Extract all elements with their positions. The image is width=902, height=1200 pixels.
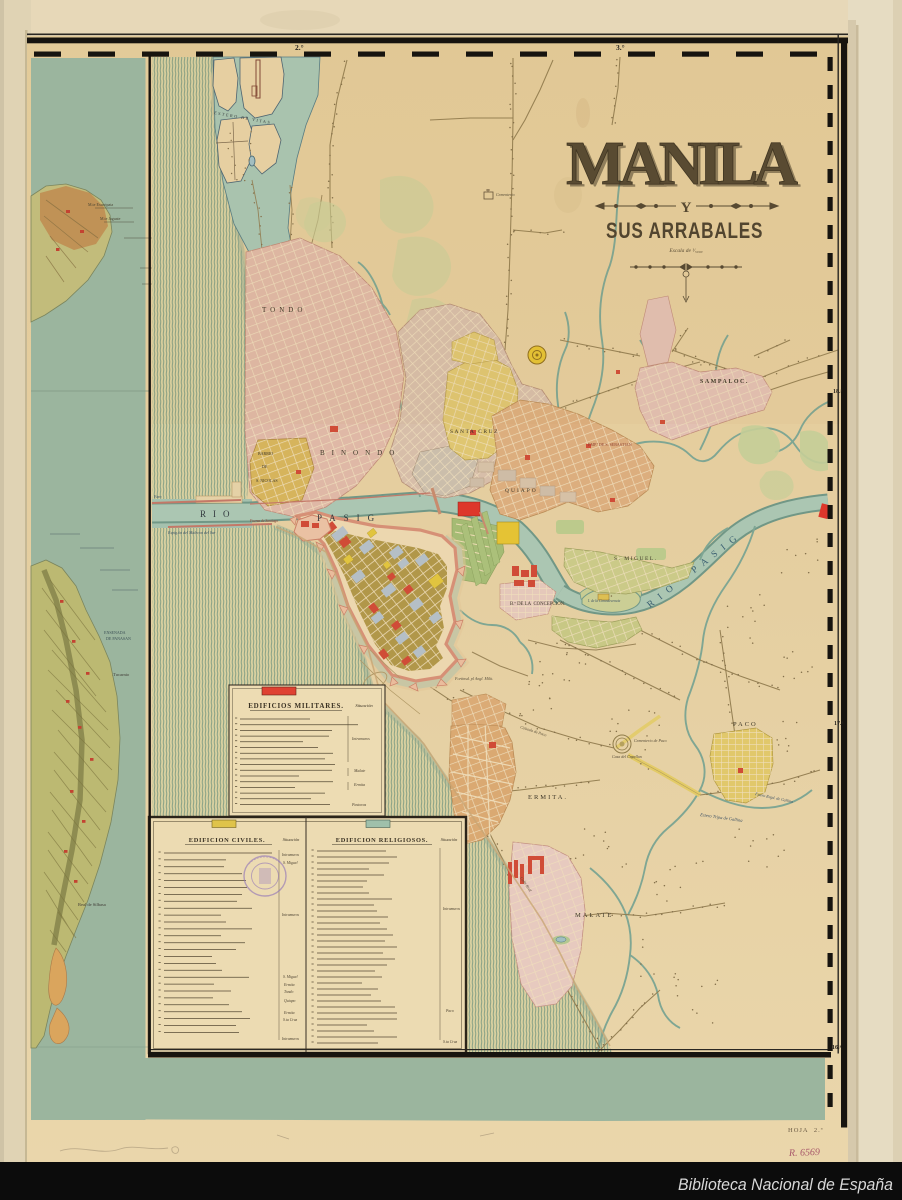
svg-text:18.ᵃ: 18.ᵃ [833,389,843,395]
svg-text:16.ᵃ: 16.ᵃ [832,1045,842,1051]
svg-text:3.°: 3.° [616,43,625,52]
svg-text:17.ᵃ: 17.ᵃ [834,721,844,727]
svg-text:R. 6569: R. 6569 [788,1147,820,1159]
svg-text:HOJA 2.ª: HOJA 2.ª [788,1127,824,1134]
svg-text:Biblioteca Nacional de España: Biblioteca Nacional de España [678,1175,893,1194]
svg-text:2.°: 2.° [295,43,304,52]
